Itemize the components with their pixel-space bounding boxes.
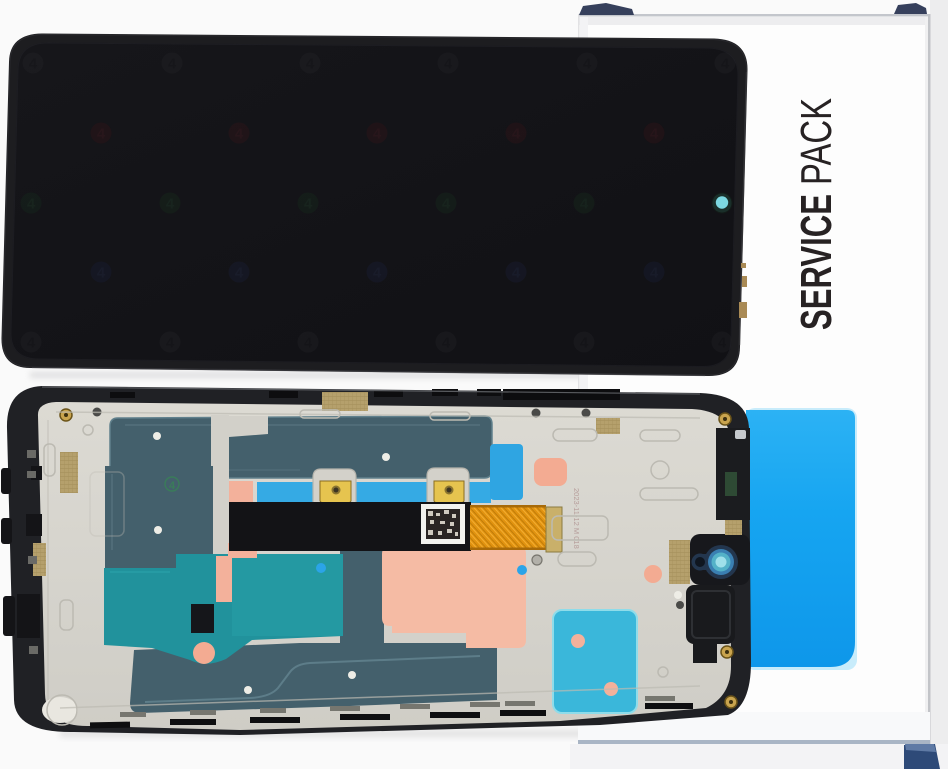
svg-text:4: 4 [718,335,727,352]
svg-text:4: 4 [168,56,177,73]
svg-text:4: 4 [373,265,382,282]
svg-text:4: 4 [442,335,451,352]
svg-text:4: 4 [166,196,175,213]
svg-text:4: 4 [304,335,313,352]
svg-text:4: 4 [650,265,659,282]
svg-text:4: 4 [650,126,659,143]
svg-text:4: 4 [306,56,315,73]
svg-text:4: 4 [442,196,451,213]
svg-text:4: 4 [166,335,175,352]
svg-text:4: 4 [721,56,730,73]
svg-text:4: 4 [580,196,589,213]
svg-text:4: 4 [27,196,36,213]
svg-text:4: 4 [512,126,521,143]
svg-text:PACK: PACK [792,98,841,185]
svg-text:4: 4 [97,126,106,143]
svg-text:4: 4 [27,335,36,352]
svg-text:4: 4 [97,265,106,282]
svg-text:4: 4 [29,56,38,73]
svg-text:4: 4 [512,265,521,282]
svg-text:4: 4 [444,56,453,73]
svg-text:4: 4 [373,126,382,143]
svg-text:4: 4 [583,56,592,73]
svg-text:4: 4 [304,196,313,213]
svg-text:4: 4 [235,126,244,143]
svg-text:4: 4 [580,335,589,352]
svg-text:4: 4 [235,265,244,282]
svg-text:4: 4 [169,480,176,492]
svg-text:SERVICE: SERVICE [792,194,841,330]
